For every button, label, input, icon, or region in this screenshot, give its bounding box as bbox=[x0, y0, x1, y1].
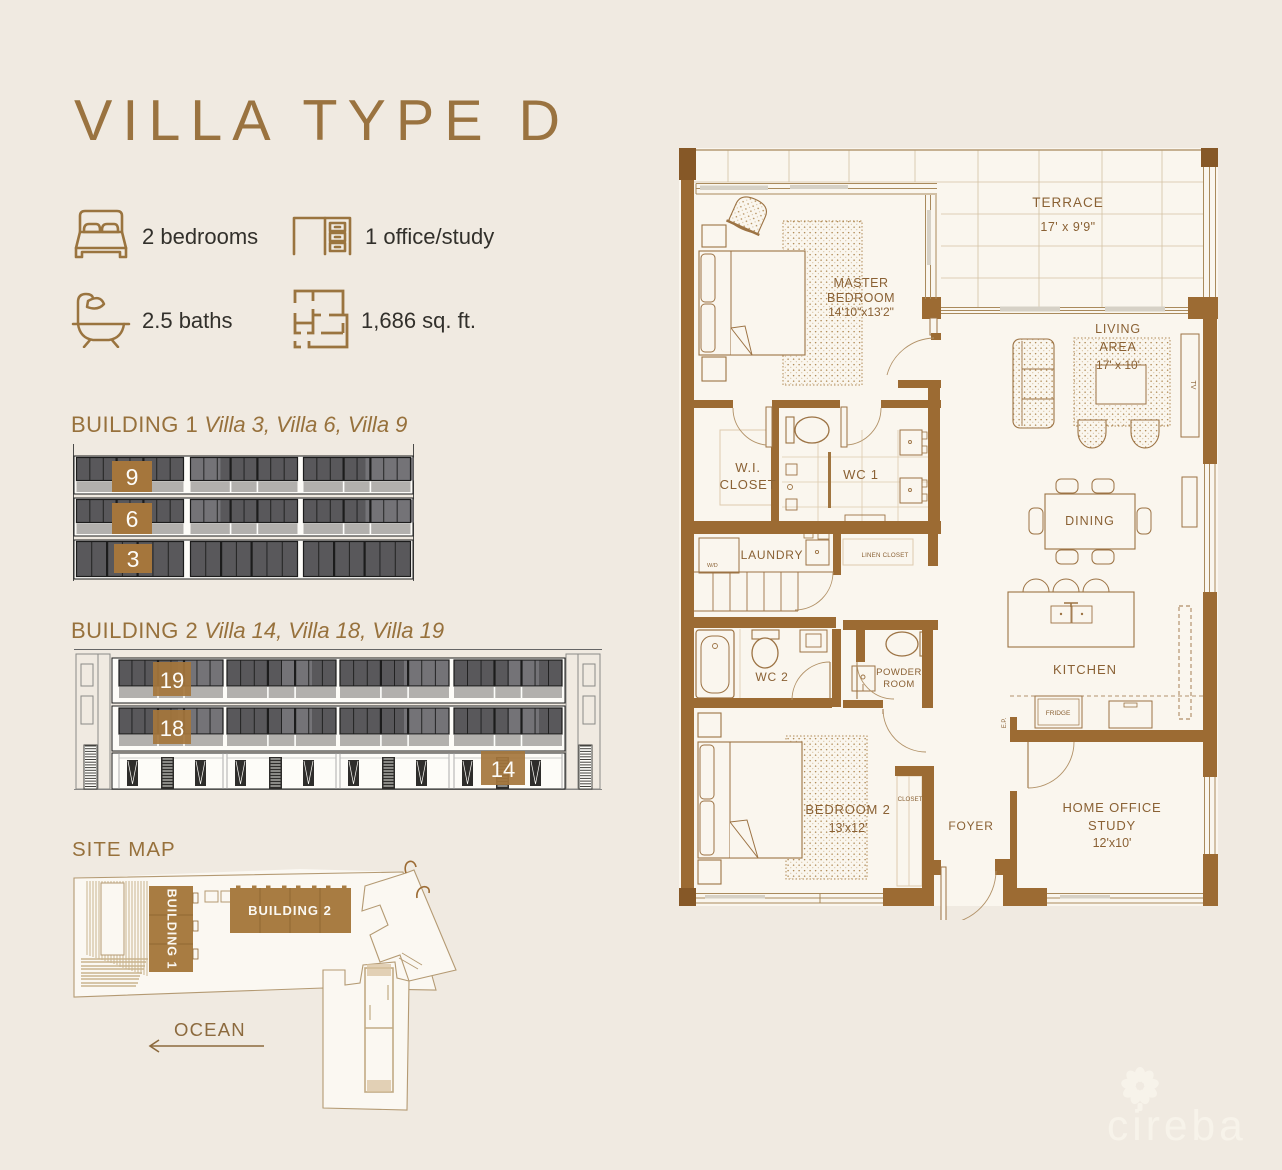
svg-text:MASTER: MASTER bbox=[833, 276, 888, 290]
svg-text:14'10"x13'2": 14'10"x13'2" bbox=[828, 305, 894, 319]
svg-text:CLOSET: CLOSET bbox=[720, 477, 777, 492]
svg-text:AREA: AREA bbox=[1099, 340, 1136, 354]
svg-text:E.P.: E.P. bbox=[1002, 717, 1008, 728]
svg-text:6: 6 bbox=[126, 506, 139, 532]
svg-text:FRIDGE: FRIDGE bbox=[1046, 710, 1071, 717]
svg-text:BEDROOM: BEDROOM bbox=[827, 291, 895, 305]
svg-text:ROOM: ROOM bbox=[883, 679, 915, 690]
svg-text:WC 2: WC 2 bbox=[755, 670, 788, 684]
svg-text:HOME OFFICE: HOME OFFICE bbox=[1062, 800, 1161, 815]
svg-text:BUILDING 1: BUILDING 1 bbox=[165, 889, 179, 970]
svg-text:BUILDING 2: BUILDING 2 bbox=[248, 903, 332, 918]
svg-text:17' x 9'9": 17' x 9'9" bbox=[1040, 220, 1095, 234]
svg-text:14: 14 bbox=[491, 757, 515, 782]
svg-text:FOYER: FOYER bbox=[948, 819, 993, 833]
svg-text:cireba: cireba bbox=[1107, 1103, 1247, 1150]
svg-text:LINEN CLOSET: LINEN CLOSET bbox=[861, 552, 908, 559]
svg-text:W.I.: W.I. bbox=[735, 460, 761, 475]
svg-text:STUDY: STUDY bbox=[1088, 818, 1136, 833]
svg-text:KITCHEN: KITCHEN bbox=[1053, 662, 1117, 677]
svg-text:LAUNDRY: LAUNDRY bbox=[741, 548, 804, 562]
svg-text:TV: TV bbox=[1189, 381, 1196, 390]
svg-text:DINING: DINING bbox=[1065, 514, 1115, 528]
svg-text:12'x10': 12'x10' bbox=[1093, 836, 1132, 850]
svg-text:TERRACE: TERRACE bbox=[1032, 195, 1104, 210]
svg-text:BEDROOM 2: BEDROOM 2 bbox=[805, 802, 890, 817]
svg-text:WC 1: WC 1 bbox=[843, 467, 879, 482]
svg-text:POWDER: POWDER bbox=[876, 667, 922, 678]
svg-text:LIVING: LIVING bbox=[1095, 322, 1141, 336]
svg-text:W/D: W/D bbox=[707, 563, 718, 569]
svg-text:17' x 10': 17' x 10' bbox=[1096, 358, 1140, 372]
svg-text:19: 19 bbox=[160, 668, 184, 693]
svg-text:3: 3 bbox=[127, 546, 140, 572]
svg-text:9: 9 bbox=[126, 464, 139, 490]
svg-text:18: 18 bbox=[160, 716, 184, 741]
svg-text:CLOSET: CLOSET bbox=[898, 796, 923, 803]
svg-text:13'x12': 13'x12' bbox=[829, 821, 868, 835]
